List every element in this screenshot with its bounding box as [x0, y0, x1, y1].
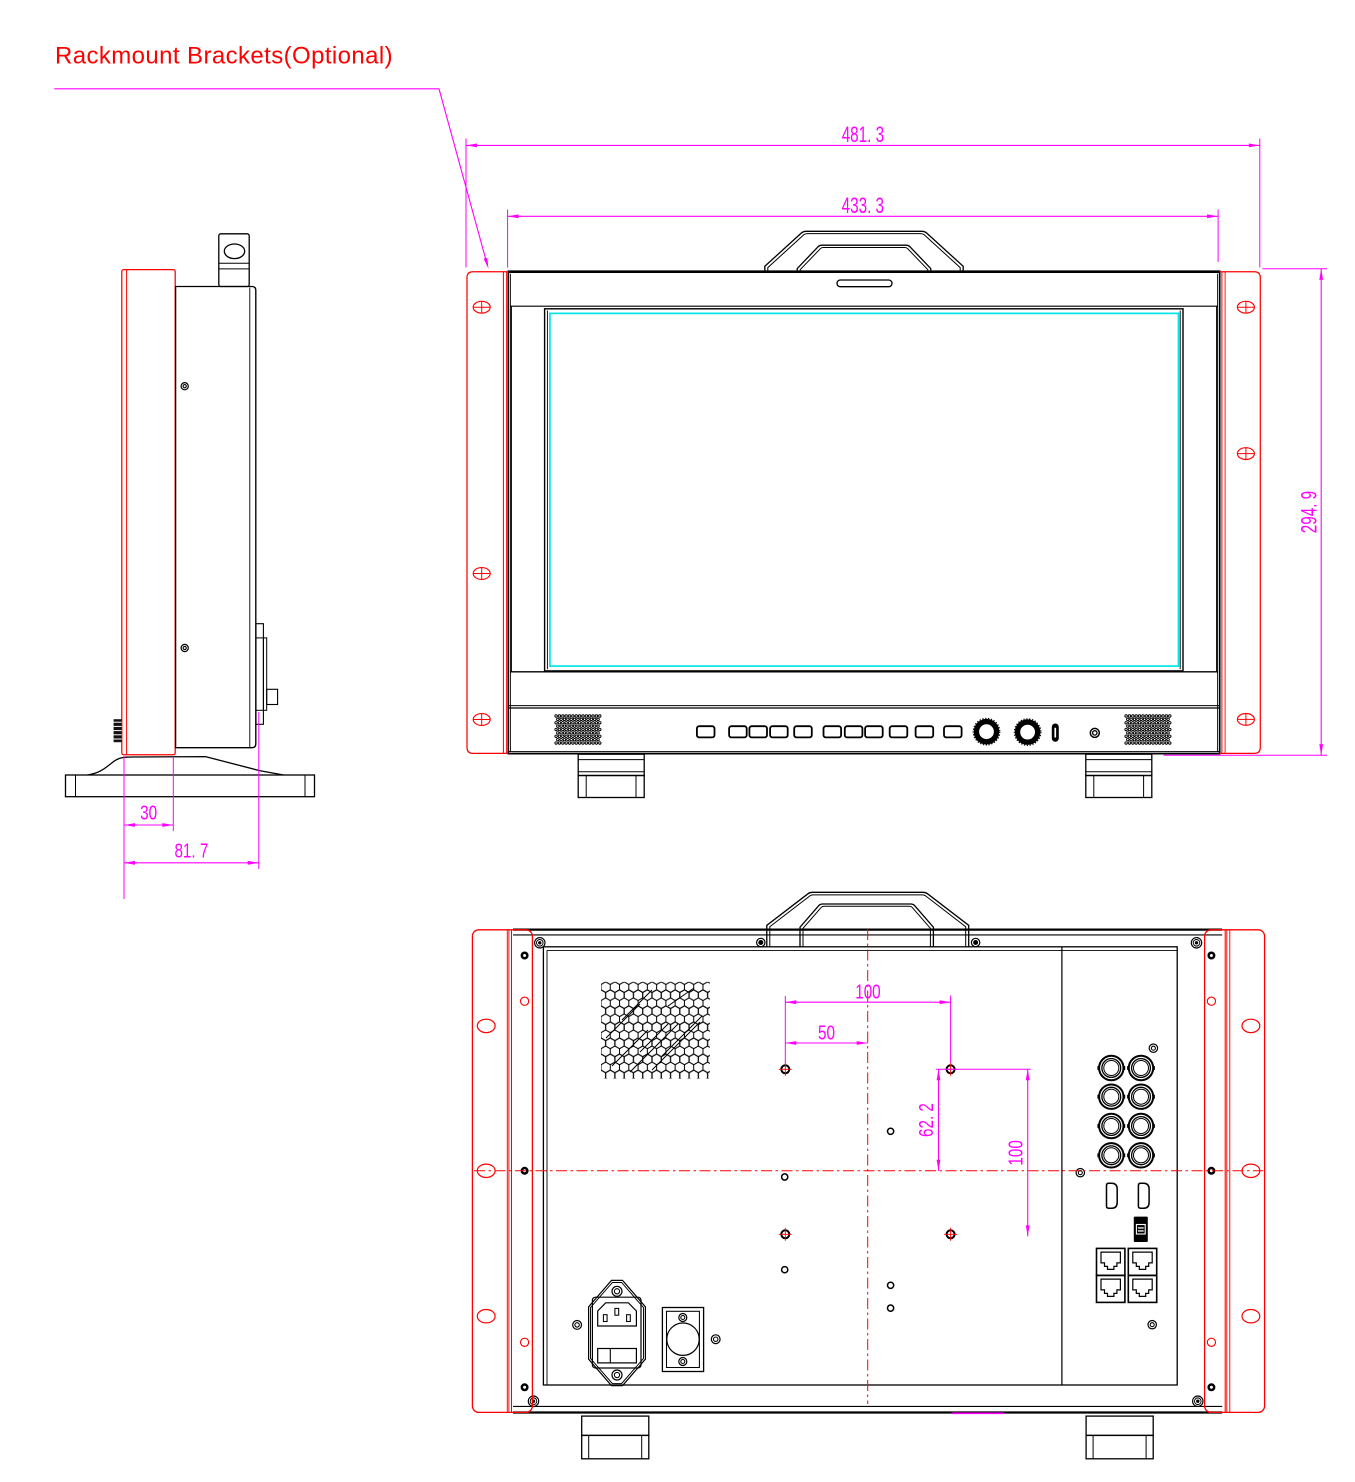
- svg-text:294. 9: 294. 9: [1296, 491, 1321, 533]
- svg-text:100: 100: [855, 982, 881, 1004]
- svg-text:30: 30: [140, 803, 157, 825]
- svg-text:62. 2: 62. 2: [916, 1103, 938, 1137]
- svg-text:50: 50: [818, 1023, 835, 1045]
- svg-text:100: 100: [1005, 1140, 1027, 1166]
- svg-text:433. 3: 433. 3: [842, 193, 884, 218]
- svg-text:Rackmount Brackets(Optional): Rackmount Brackets(Optional): [55, 43, 393, 70]
- svg-text:81. 7: 81. 7: [174, 840, 208, 862]
- svg-text:481. 3: 481. 3: [842, 122, 884, 147]
